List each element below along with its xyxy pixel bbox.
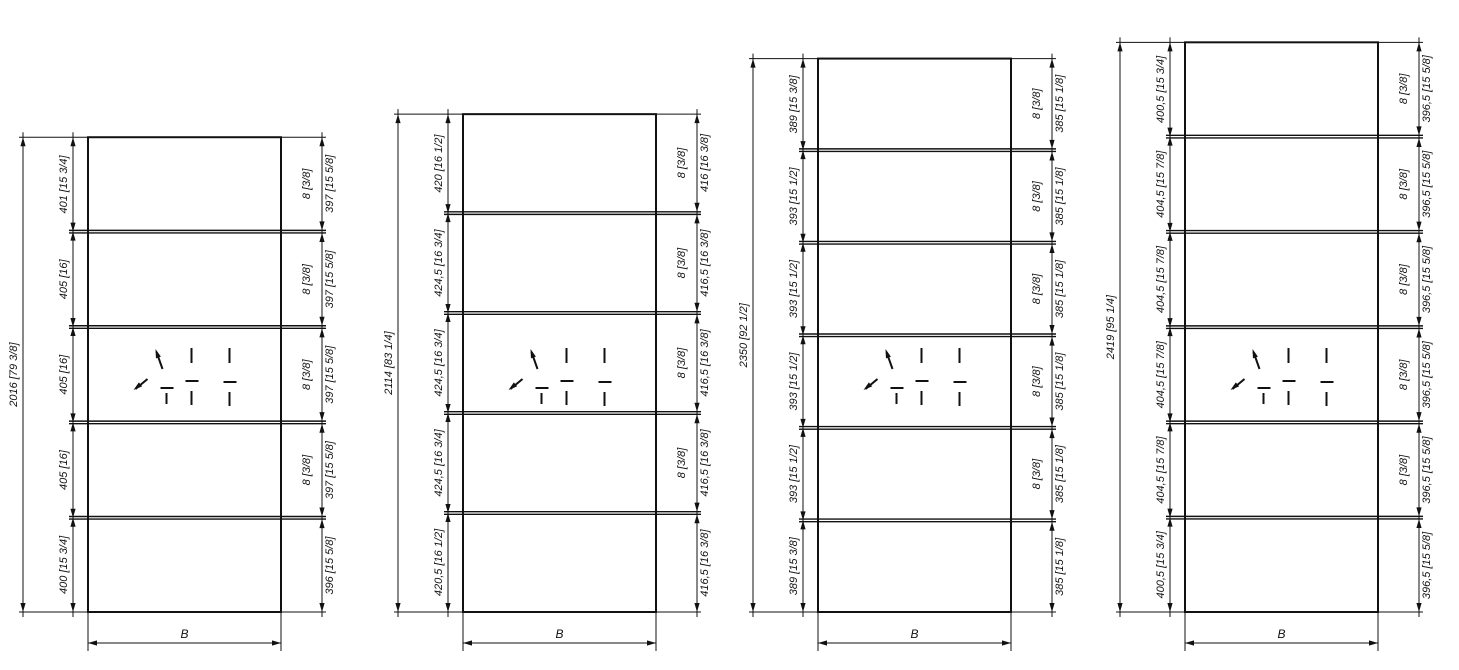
dimension-arrow bbox=[20, 603, 25, 612]
dimension-arrow bbox=[694, 514, 699, 523]
dimension-arrow bbox=[1416, 603, 1421, 612]
dimension-arrow bbox=[1049, 603, 1054, 612]
dimension-arrow bbox=[694, 214, 699, 223]
dimension-arrow bbox=[818, 640, 827, 645]
dimension-arrow bbox=[272, 640, 281, 645]
dimension-arrow bbox=[319, 221, 324, 230]
dimension-arrow bbox=[1416, 507, 1421, 516]
dimension-arrow bbox=[1416, 138, 1421, 147]
dimension-arrow bbox=[694, 414, 699, 423]
dimension-arrow bbox=[1049, 244, 1054, 253]
dimension-arrow bbox=[694, 203, 699, 212]
frame-outline bbox=[818, 59, 1011, 612]
dimension-arrow bbox=[319, 519, 324, 528]
width-label: B bbox=[1277, 627, 1285, 641]
dimension-arrow bbox=[750, 603, 755, 612]
overall-height-label: 2016 [79 3/8] bbox=[8, 342, 20, 408]
rail-thickness-label: 8 [3/8] bbox=[1031, 87, 1043, 119]
dimension-arrow bbox=[70, 137, 75, 146]
left-dim-label: 393 [15 1/2] bbox=[788, 166, 800, 225]
dimension-arrow bbox=[1416, 424, 1421, 433]
dimension-arrow bbox=[1002, 640, 1011, 645]
dimension-arrow bbox=[319, 233, 324, 242]
frame-outline bbox=[88, 137, 281, 612]
rail-thickness-label: 8 [3/8] bbox=[301, 263, 313, 295]
up-arrow-icon bbox=[528, 348, 536, 358]
dimension-arrow bbox=[1049, 418, 1054, 427]
panel-height-label: 396,5 [15 5/8] bbox=[1421, 54, 1433, 122]
panel-height-label: 385 [15 1/8] bbox=[1054, 74, 1066, 133]
panel-height-label: 397 [15 5/8] bbox=[324, 249, 336, 308]
up-arrow-icon bbox=[1250, 348, 1258, 358]
direction-arrows-icon bbox=[1229, 348, 1334, 406]
technical-drawing-canvas: 401 [15 3/4]405 [16]405 [16]405 [16]400 … bbox=[0, 0, 1459, 670]
left-dim-label: 389 [15 3/8] bbox=[788, 536, 800, 595]
up-arrow-icon bbox=[883, 348, 891, 358]
dimension-arrow bbox=[1167, 42, 1172, 51]
left-dim-label: 405 [16] bbox=[58, 354, 70, 395]
rail-thickness-label: 8 [3/8] bbox=[301, 168, 313, 200]
elevation-drawing-3: 389 [15 3/8]393 [15 1/2]393 [15 1/2]393 … bbox=[738, 54, 1066, 651]
direction-arrows-icon bbox=[862, 348, 967, 406]
dimension-arrow bbox=[1049, 232, 1054, 241]
drawing-sheet: 401 [15 3/4]405 [16]405 [16]405 [16]400 … bbox=[0, 0, 1459, 670]
panel-height-label: 416,5 [16 3/8] bbox=[699, 428, 711, 496]
direction-arrows-icon bbox=[132, 348, 237, 406]
panel-height-label: 396 [15 5/8] bbox=[324, 536, 336, 595]
left-dim-label: 424,5 [16 3/4] bbox=[433, 228, 445, 296]
dimension-arrow bbox=[1416, 328, 1421, 337]
dimension-arrow bbox=[1416, 317, 1421, 326]
left-dim-label: 404,5 [15 7/8] bbox=[1155, 245, 1167, 313]
dimension-arrow bbox=[694, 303, 699, 312]
panel-height-label: 385 [15 1/8] bbox=[1054, 537, 1066, 596]
rail-thickness-label: 8 [3/8] bbox=[301, 359, 313, 391]
left-dim-label: 400,5 [15 3/4] bbox=[1155, 55, 1167, 123]
dimension-arrow bbox=[694, 314, 699, 323]
panel-height-label: 397 [15 5/8] bbox=[324, 440, 336, 499]
dimension-arrow bbox=[1416, 519, 1421, 528]
dimension-arrow bbox=[1049, 337, 1054, 346]
dimension-arrow bbox=[1049, 325, 1054, 334]
elevation-drawing-2: 420 [16 1/2]424,5 [16 3/4]424,5 [16 3/4]… bbox=[383, 109, 711, 651]
dimension-arrow bbox=[1416, 412, 1421, 421]
left-dim-label: 420 [16 1/2] bbox=[433, 134, 445, 193]
left-dim-label: 400,5 [15 3/4] bbox=[1155, 530, 1167, 598]
dimension-arrow bbox=[1049, 140, 1054, 149]
dimension-arrow bbox=[694, 503, 699, 512]
dimension-arrow bbox=[1416, 42, 1421, 51]
dimension-arrow bbox=[463, 640, 472, 645]
dimension-arrow bbox=[445, 603, 450, 612]
left-dim-label: 400 [15 3/4] bbox=[58, 535, 70, 594]
up-arrow-icon bbox=[153, 348, 161, 358]
rail-thickness-label: 8 [3/8] bbox=[1031, 458, 1043, 490]
left-dim-label: 393 [15 1/2] bbox=[788, 444, 800, 503]
left-dim-label: 401 [15 3/4] bbox=[58, 154, 70, 213]
dimension-arrow bbox=[319, 603, 324, 612]
rail-thickness-label: 8 [3/8] bbox=[676, 347, 688, 379]
dimension-arrow bbox=[1049, 151, 1054, 160]
overall-height-label: 2419 [95 1/4] bbox=[1105, 294, 1117, 360]
elevation-drawing-4: 400,5 [15 3/4]404,5 [15 7/8]404,5 [15 7/… bbox=[1105, 37, 1433, 651]
panel-height-label: 385 [15 1/8] bbox=[1054, 166, 1066, 225]
dimension-arrow bbox=[1117, 603, 1122, 612]
width-label: B bbox=[180, 627, 188, 641]
dimension-arrow bbox=[395, 603, 400, 612]
dimension-arrow bbox=[395, 114, 400, 123]
panel-height-label: 396,5 [15 5/8] bbox=[1421, 245, 1433, 313]
dimension-arrow bbox=[319, 328, 324, 337]
left-dim-label: 393 [15 1/2] bbox=[788, 259, 800, 318]
dimension-arrow bbox=[750, 59, 755, 68]
panel-height-label: 416,5 [16 3/8] bbox=[699, 328, 711, 396]
dimension-arrow bbox=[800, 59, 805, 68]
dimension-arrow bbox=[647, 640, 656, 645]
left-dim-label: 404,5 [15 7/8] bbox=[1155, 435, 1167, 503]
rail-thickness-label: 8 [3/8] bbox=[1031, 365, 1043, 397]
panel-height-label: 385 [15 1/8] bbox=[1054, 444, 1066, 503]
dimension-arrow bbox=[800, 603, 805, 612]
frame-outline bbox=[1185, 42, 1378, 612]
elevation-drawing-1: 401 [15 3/4]405 [16]405 [16]405 [16]400 … bbox=[8, 132, 336, 651]
dimension-arrow bbox=[445, 114, 450, 123]
rail-thickness-label: 8 [3/8] bbox=[1031, 273, 1043, 305]
rail-thickness-label: 8 [3/8] bbox=[1031, 180, 1043, 212]
dimension-arrow bbox=[20, 137, 25, 146]
panel-height-label: 385 [15 1/8] bbox=[1054, 259, 1066, 318]
dimension-arrow bbox=[694, 603, 699, 612]
rail-thickness-label: 8 [3/8] bbox=[1398, 263, 1410, 295]
width-label: B bbox=[910, 627, 918, 641]
left-dim-label: 405 [16] bbox=[58, 449, 70, 490]
dimension-arrow bbox=[70, 603, 75, 612]
left-dim-label: 404,5 [15 7/8] bbox=[1155, 150, 1167, 218]
panel-height-label: 396,5 [15 5/8] bbox=[1421, 435, 1433, 503]
dimension-arrow bbox=[1369, 640, 1378, 645]
width-label: B bbox=[555, 627, 563, 641]
dimension-arrow bbox=[1416, 222, 1421, 231]
panel-height-label: 416,5 [16 3/8] bbox=[699, 529, 711, 597]
dimension-arrow bbox=[1117, 42, 1122, 51]
overall-height-label: 2114 [83 1/4] bbox=[383, 330, 395, 395]
dimension-arrow bbox=[694, 403, 699, 412]
dimension-arrow bbox=[319, 424, 324, 433]
dimension-arrow bbox=[319, 317, 324, 326]
left-dim-label: 424,5 [16 3/4] bbox=[433, 328, 445, 396]
rail-thickness-label: 8 [3/8] bbox=[1398, 73, 1410, 105]
overall-height-label: 2350 [92 1/2] bbox=[738, 302, 750, 368]
dimension-arrow bbox=[1049, 59, 1054, 68]
rail-thickness-label: 8 [3/8] bbox=[676, 247, 688, 279]
left-dim-label: 420,5 [16 1/2] bbox=[433, 528, 445, 596]
panel-height-label: 396,5 [15 5/8] bbox=[1421, 531, 1433, 599]
dimension-arrow bbox=[1049, 429, 1054, 438]
panel-height-label: 397 [15 5/8] bbox=[324, 345, 336, 404]
frame-outline bbox=[463, 114, 656, 612]
dimension-arrow bbox=[319, 412, 324, 421]
dimension-arrow bbox=[694, 114, 699, 123]
direction-arrows-icon bbox=[507, 348, 612, 406]
dimension-arrow bbox=[1185, 640, 1194, 645]
panel-height-label: 396,5 [15 5/8] bbox=[1421, 150, 1433, 218]
rail-thickness-label: 8 [3/8] bbox=[676, 447, 688, 479]
left-dim-label: 424,5 [16 3/4] bbox=[433, 428, 445, 496]
left-dim-label: 404,5 [15 7/8] bbox=[1155, 340, 1167, 408]
rail-thickness-label: 8 [3/8] bbox=[301, 454, 313, 486]
dimension-arrow bbox=[88, 640, 97, 645]
rail-thickness-label: 8 [3/8] bbox=[1398, 454, 1410, 486]
rail-thickness-label: 8 [3/8] bbox=[1398, 359, 1410, 391]
dimension-arrow bbox=[1049, 522, 1054, 531]
dimension-arrow bbox=[1416, 233, 1421, 242]
rail-thickness-label: 8 [3/8] bbox=[1398, 168, 1410, 200]
dimension-arrow bbox=[319, 137, 324, 146]
dimension-arrow bbox=[1049, 510, 1054, 519]
panel-height-label: 385 [15 1/8] bbox=[1054, 352, 1066, 411]
left-dim-label: 393 [15 1/2] bbox=[788, 352, 800, 411]
rail-thickness-label: 8 [3/8] bbox=[676, 147, 688, 179]
left-dim-label: 389 [15 3/8] bbox=[788, 74, 800, 133]
dimension-arrow bbox=[319, 508, 324, 517]
panel-height-label: 416,5 [16 3/8] bbox=[699, 228, 711, 296]
dimension-arrow bbox=[1167, 603, 1172, 612]
panel-height-label: 397 [15 5/8] bbox=[324, 154, 336, 213]
panel-height-label: 396,5 [15 5/8] bbox=[1421, 340, 1433, 408]
left-dim-label: 405 [16] bbox=[58, 259, 70, 300]
dimension-arrow bbox=[1416, 126, 1421, 135]
panel-height-label: 416 [16 3/8] bbox=[699, 133, 711, 192]
